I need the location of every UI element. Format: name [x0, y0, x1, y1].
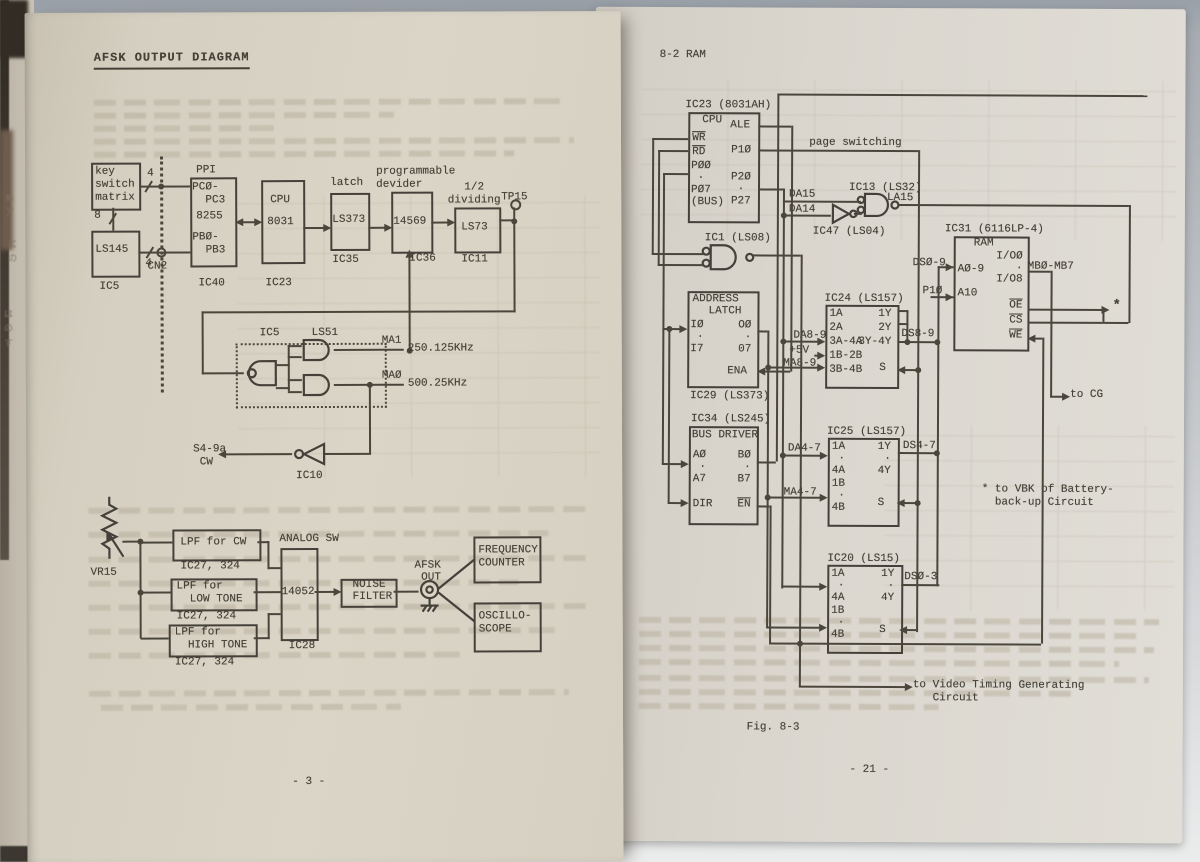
ic23-label: IC23	[265, 277, 291, 290]
wire	[288, 345, 290, 391]
ic5b-label: IC5	[260, 327, 280, 340]
analog-sw-title: ANALOG SW	[279, 533, 338, 546]
lpf-high-label: LPF for HIGH TONE	[175, 626, 248, 651]
analog-sw-label: 14052	[282, 586, 315, 599]
tp15-testpoint	[510, 199, 521, 210]
page-title: AFSK OUTPUT DIAGRAM	[94, 50, 250, 70]
frequency-counter-label: FREQUENCY COUNTER	[478, 544, 538, 570]
wire	[288, 391, 302, 393]
wire	[202, 311, 204, 374]
wire	[254, 591, 281, 593]
freq1-label: 250.125KHz	[408, 342, 474, 355]
wire	[408, 252, 410, 352]
cpu-8031: 8031	[267, 216, 293, 229]
and-gate-icon	[302, 373, 334, 397]
ic40-label: IC40	[198, 277, 224, 290]
arrowhead	[235, 218, 243, 226]
half-div-title: 1/2 dividing	[446, 181, 502, 207]
bus-width-4: 4	[147, 168, 154, 181]
wire	[369, 384, 371, 455]
wire	[268, 613, 270, 639]
arrowhead	[384, 224, 392, 232]
ghost-text	[101, 704, 401, 711]
wire	[324, 453, 369, 455]
ls73-label: LS73	[461, 221, 487, 234]
wire	[222, 453, 292, 455]
photographed-manual-pages: め ア に の は の す 8-2 RAM IC23 (8031AH) CPU …	[0, 0, 1200, 862]
wire	[267, 541, 269, 569]
arrowhead	[405, 250, 413, 258]
cpu-label: CPU	[270, 194, 290, 207]
wire	[140, 542, 172, 544]
wire	[141, 592, 171, 594]
wire	[288, 379, 302, 381]
ic10-label: IC10	[296, 470, 322, 483]
nand-gate-icon	[242, 359, 278, 387]
ppi-8255: 8255	[196, 210, 222, 223]
ghost-text	[94, 112, 394, 119]
ma0-label: MAØ	[382, 370, 402, 383]
ic27b-label: IC27, 324	[177, 610, 236, 623]
inverter-icon	[292, 441, 326, 467]
ic27a-label: IC27, 324	[180, 560, 239, 573]
wire	[288, 356, 302, 358]
wire	[141, 638, 169, 640]
ic28-label: IC28	[289, 640, 315, 653]
ic35-label: IC35	[332, 254, 358, 267]
ic27c-label: IC27, 324	[175, 656, 234, 669]
ppi-pb-pins: PBØ- PB3	[192, 231, 225, 256]
divider-title: programmable devider	[376, 166, 455, 192]
ma1-label: MA1	[382, 335, 402, 348]
latch-title: latch	[330, 177, 363, 190]
ppi-pc-pins: PCØ- PC3	[192, 181, 225, 206]
lpf-low-label: LPF for LOW TONE	[177, 580, 243, 605]
vr15-potentiometer-icon	[96, 497, 126, 577]
wire	[288, 345, 302, 347]
s4-9a-cw-label: S4-9a CW	[193, 443, 226, 469]
page-number: - 3 -	[292, 776, 325, 789]
wire	[268, 613, 281, 615]
ppi-title: PPI	[196, 164, 216, 177]
freq0-label: 500.25KHz	[408, 377, 467, 390]
wire	[334, 349, 404, 351]
bus-width-8: 8	[94, 210, 101, 223]
fanout-wires	[436, 551, 476, 631]
and-gate-icon	[302, 338, 334, 362]
ic5-label: IC5	[99, 281, 119, 294]
noise-filter-label: NOISE FILTER	[353, 580, 393, 603]
wire	[394, 591, 419, 593]
lpf-cw-label: LPF for CW	[180, 536, 246, 549]
left-page-layer: AFSK OUTPUT DIAGRAM key switch matrix LS…	[0, 0, 1200, 862]
key-switch-label: key switch matrix	[95, 166, 135, 205]
cn2-label: CN2	[147, 261, 167, 274]
arrowhead	[447, 219, 455, 227]
vr15-label: VR15	[90, 567, 116, 580]
wire	[303, 227, 325, 229]
arrowhead	[323, 224, 331, 232]
oscilloscope-label: OSCILLO- SCOPE	[479, 610, 532, 636]
junction-dot	[511, 218, 517, 224]
ls145-label: LS145	[95, 244, 128, 257]
ic11-label: IC11	[461, 253, 487, 266]
ghost-text	[94, 125, 274, 132]
divider-label: 14569	[393, 216, 426, 229]
ls373-label: LS373	[332, 214, 365, 227]
arrowhead	[254, 218, 262, 226]
wire	[267, 567, 280, 569]
